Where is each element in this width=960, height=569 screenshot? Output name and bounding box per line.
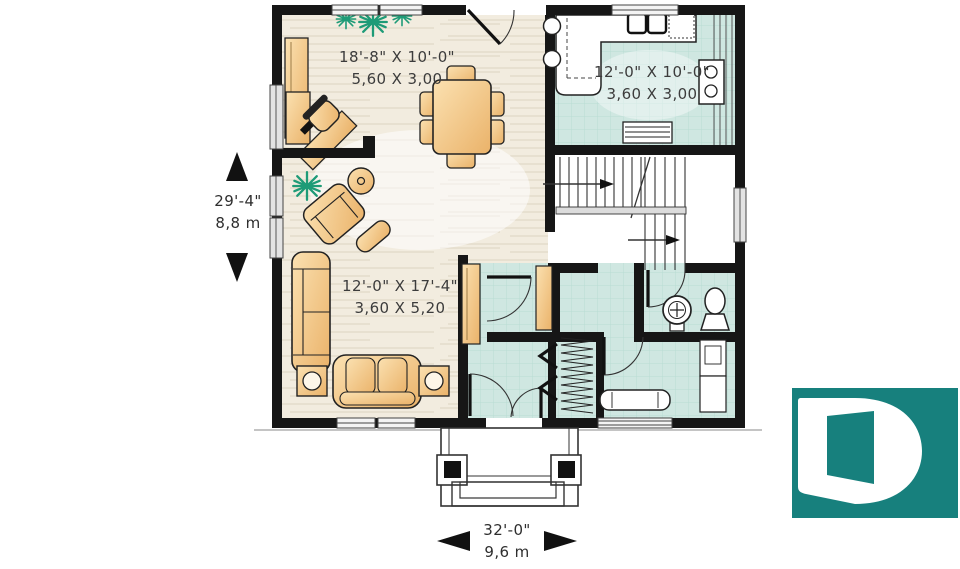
window bbox=[332, 5, 378, 15]
floor-plan-drawing bbox=[0, 0, 960, 569]
window bbox=[337, 418, 375, 428]
width-imperial: 32'-0" bbox=[483, 519, 530, 541]
dimension-arrow-down bbox=[226, 253, 248, 282]
window bbox=[270, 218, 283, 258]
brand-logo bbox=[792, 388, 958, 518]
lamp bbox=[303, 372, 321, 390]
bench bbox=[600, 390, 670, 410]
kitchen-sink bbox=[628, 14, 666, 33]
kitchen-size-imperial: 12'-0" X 10'-0" bbox=[594, 61, 710, 83]
width-metric: 9,6 m bbox=[483, 541, 530, 563]
window bbox=[270, 176, 283, 216]
width-dimension-label: 32'-0" 9,6 m bbox=[483, 519, 530, 563]
wall-kitchen-divider bbox=[545, 15, 555, 232]
entry-cabinet bbox=[536, 266, 552, 330]
wall-dining-living bbox=[282, 148, 375, 158]
side-table bbox=[348, 168, 374, 194]
porch-post bbox=[437, 455, 467, 485]
plant-icon bbox=[293, 172, 321, 200]
dimension-arrow-left bbox=[437, 531, 470, 551]
depth-metric: 8,8 m bbox=[214, 212, 261, 234]
floor-plan-page: 18'-8" X 10'-0" 5,60 X 3,00 12'-0" X 10'… bbox=[0, 0, 960, 569]
dining-size-imperial: 18'-8" X 10'-0" bbox=[339, 46, 455, 68]
end-table-right bbox=[419, 366, 449, 396]
window bbox=[378, 418, 415, 428]
window bbox=[734, 188, 746, 242]
kitchen-room-label: 12'-0" X 10'-0" 3,60 X 3,00 bbox=[594, 61, 710, 105]
wall-bath-left bbox=[634, 263, 644, 342]
lamp bbox=[425, 372, 443, 390]
storage-cabinets bbox=[700, 340, 726, 412]
window bbox=[598, 418, 672, 428]
end-table-left bbox=[297, 366, 327, 396]
bar-stool bbox=[544, 18, 561, 35]
porch bbox=[437, 428, 581, 506]
depth-imperial: 29'-4" bbox=[214, 190, 261, 212]
porch-post bbox=[551, 455, 581, 485]
bar-stool bbox=[544, 51, 561, 68]
kitchen-size-metric: 3,60 X 3,00 bbox=[594, 83, 710, 105]
dining-room-label: 18'-8" X 10'-0" 5,60 X 3,00 bbox=[339, 46, 455, 90]
depth-dimension-label: 29'-4" 8,8 m bbox=[214, 190, 261, 234]
dining-table bbox=[433, 80, 491, 154]
window bbox=[270, 85, 283, 149]
dishwasher bbox=[669, 13, 694, 38]
kitchen-cabinet bbox=[623, 122, 672, 143]
living-room-label: 12'-0" X 17'-4" 3,60 X 5,20 bbox=[342, 275, 458, 319]
handrail bbox=[556, 207, 686, 214]
front-door-opening bbox=[486, 418, 542, 428]
back-door-opening bbox=[466, 5, 546, 15]
window bbox=[380, 5, 422, 15]
living-size-imperial: 12'-0" X 17'-4" bbox=[342, 275, 458, 297]
wall-bath-top bbox=[685, 263, 735, 273]
wall-stub bbox=[363, 136, 375, 158]
dimension-arrow-up bbox=[226, 152, 248, 181]
loveseat bbox=[333, 355, 421, 408]
wall-entry-mid bbox=[552, 263, 560, 332]
sofa bbox=[292, 252, 330, 372]
window bbox=[612, 5, 678, 15]
living-size-metric: 3,60 X 5,20 bbox=[342, 297, 458, 319]
dimension-arrow-right bbox=[544, 531, 577, 551]
dining-size-metric: 5,60 X 3,00 bbox=[339, 68, 455, 90]
entry-cabinet bbox=[462, 264, 480, 344]
wall-kitchen-bottom bbox=[548, 145, 745, 155]
